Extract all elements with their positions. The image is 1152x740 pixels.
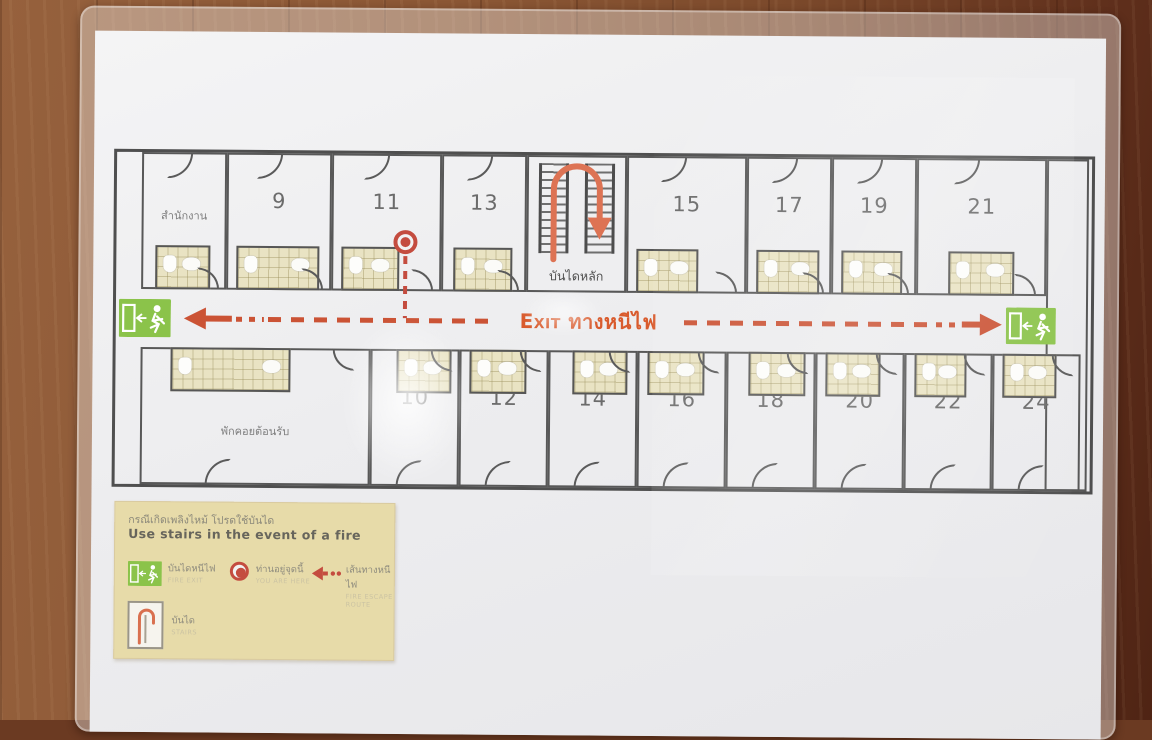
room-number-label: 9 <box>229 189 330 214</box>
room-number-label: 13 <box>444 190 525 215</box>
legend-item-label: เส้นทางหนีไฟ <box>346 563 395 593</box>
laminate-glare <box>651 75 1075 578</box>
room-12: 12 <box>459 350 549 488</box>
laminated-sheet: สำนักงาน 9 11 13 15 17 <box>75 6 1122 740</box>
legend-item-stairs: บันได STAIRS <box>171 613 197 636</box>
room-11: 11 <box>331 154 442 292</box>
room-office: สำนักงาน <box>141 152 227 290</box>
legend-item-label: บันไดหนีไฟ <box>168 561 216 576</box>
bathroom <box>453 247 512 291</box>
route-dashes-left <box>268 317 494 324</box>
route-arrow-left <box>184 307 232 329</box>
exit-sign-icon <box>119 298 171 338</box>
escape-route-arrow-icon <box>312 565 342 581</box>
room-13: 13 <box>441 154 527 292</box>
legend-item-escape-route: เส้นทางหนีไฟ FIRE ESCAPE ROUTE <box>346 563 395 609</box>
room-9: 9 <box>226 153 332 291</box>
room-office-label: สำนักงาน <box>144 206 225 225</box>
stairs-icon <box>127 601 163 649</box>
legend-item-sub: YOU ARE HERE <box>256 577 310 585</box>
evacuation-plan-paper: สำนักงาน 9 11 13 15 17 <box>90 31 1106 740</box>
room-number-label: 11 <box>334 190 440 215</box>
legend-title-english: Use stairs in the event of a fire <box>128 526 361 543</box>
room-14: 14 <box>548 350 638 488</box>
legend-item-label: ท่านอยู่จุดนี้ <box>256 562 310 577</box>
legend-item-you-are-here: ท่านอยู่จุดนี้ YOU ARE HERE <box>256 562 310 585</box>
you-are-here-dot-icon <box>230 562 249 581</box>
main-staircase: บันไดหลัก <box>526 155 627 293</box>
laminate-glare <box>342 318 473 484</box>
bathroom <box>341 247 399 291</box>
stair-direction-arrow-icon <box>528 151 629 264</box>
legend-item-sub: FIRE ESCAPE ROUTE <box>346 593 395 609</box>
route-dashdot <box>236 317 264 322</box>
legend-item-fire-exit: บันไดหนีไฟ FIRE EXIT <box>168 561 216 584</box>
legend-item-label: บันได <box>171 613 197 628</box>
exit-sign-icon <box>128 561 162 586</box>
legend-box: กรณีเกิดเพลิงไหม้ โปรดใช้บันได Use stair… <box>113 501 395 661</box>
room-reception: พักคอยต้อนรับ <box>140 347 371 486</box>
bathroom <box>572 350 627 394</box>
legend-item-sub: FIRE EXIT <box>168 576 216 584</box>
legend-item-sub: STAIRS <box>171 628 197 636</box>
you-are-here-dot-icon <box>393 230 417 254</box>
bathroom <box>170 347 290 392</box>
bathroom <box>469 350 526 394</box>
you-are-here-connector <box>403 256 407 318</box>
laminate-glare <box>523 289 603 336</box>
bathroom <box>236 246 319 291</box>
bathroom <box>155 245 210 289</box>
main-stairs-label: บันไดหลัก <box>528 266 624 287</box>
room-reception-label: พักคอยต้อนรับ <box>142 421 368 441</box>
